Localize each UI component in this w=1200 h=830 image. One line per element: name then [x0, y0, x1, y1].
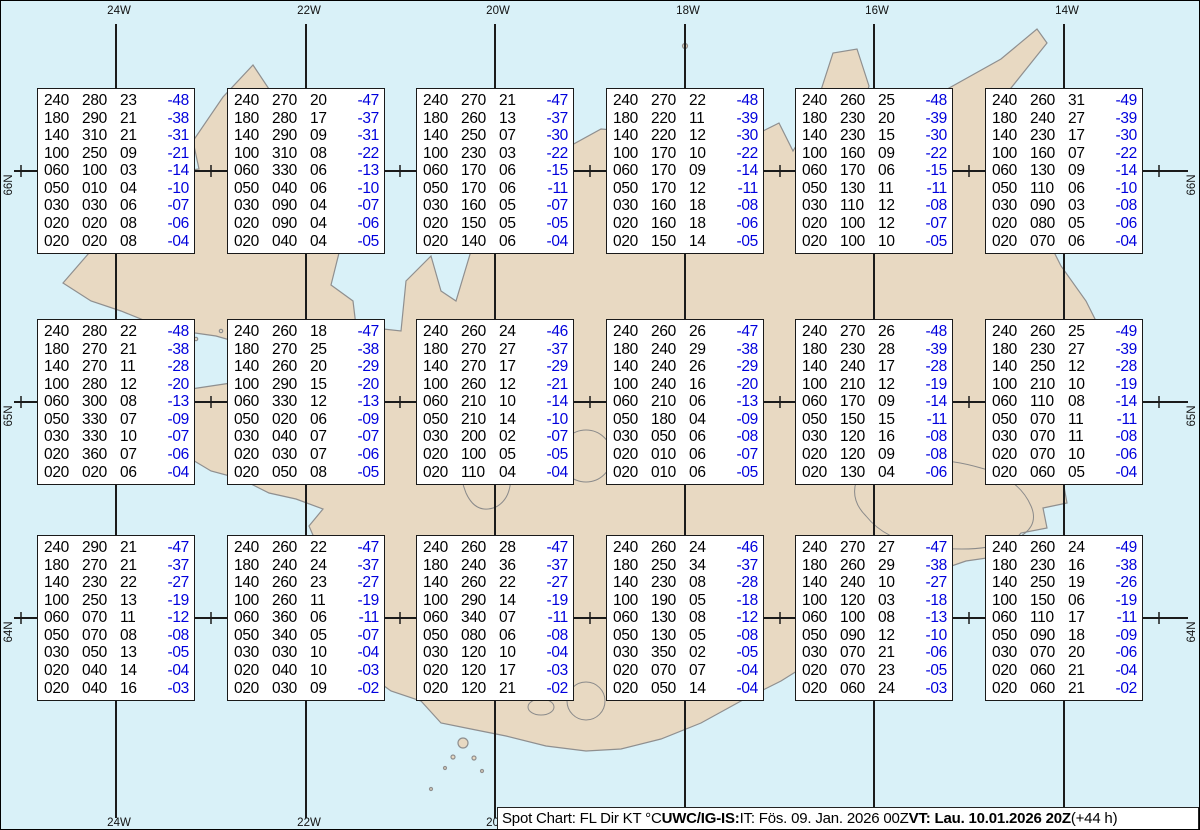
dir-value: 260 — [1030, 539, 1068, 556]
temp-value: -47 — [925, 539, 947, 556]
temp-value: -04 — [1115, 233, 1137, 250]
kt-value: 06 — [120, 197, 150, 214]
dir-value: 070 — [1030, 428, 1068, 445]
dir-value: 050 — [82, 644, 120, 661]
spot-row: 02012009-08 — [802, 446, 947, 463]
temp-value: -46 — [546, 323, 568, 340]
kt-value: 10 — [499, 393, 529, 410]
temp-value: -47 — [357, 92, 379, 109]
dir-value: 070 — [651, 662, 689, 679]
dir-value: 250 — [1030, 358, 1068, 375]
dir-value: 280 — [82, 323, 120, 340]
temp-value: -48 — [925, 323, 947, 340]
fl-value: 020 — [992, 464, 1030, 481]
fl-value: 060 — [802, 393, 840, 410]
temp-value: -27 — [167, 574, 189, 591]
parallel-label-left: 64N — [3, 621, 15, 642]
dir-value: 110 — [840, 197, 878, 214]
spot-row: 03007020-06 — [992, 644, 1137, 661]
kt-value: 14 — [499, 592, 529, 609]
spot-row: 06017006-15 — [802, 162, 947, 179]
spot-row: 03009003-08 — [992, 197, 1137, 214]
kt-value: 14 — [120, 662, 150, 679]
kt-value: 14 — [499, 411, 529, 428]
spot-row: 05011006-10 — [992, 180, 1137, 197]
fl-value: 100 — [802, 592, 840, 609]
temp-value: -11 — [548, 180, 568, 197]
footer-text: Spot Chart: FL Dir KT °C — [502, 810, 662, 827]
kt-value: 05 — [499, 197, 529, 214]
dir-value: 180 — [651, 411, 689, 428]
spot-row: 10025013-19 — [44, 592, 189, 609]
spot-row: 05004006-10 — [234, 180, 379, 197]
spot-row: 03012010-04 — [423, 644, 568, 661]
spot-row: 10029014-19 — [423, 592, 568, 609]
spot-row: 05017006-11 — [423, 180, 568, 197]
fl-value: 020 — [802, 446, 840, 463]
fl-value: 180 — [423, 110, 461, 127]
fl-value: 020 — [992, 446, 1030, 463]
temp-value: -07 — [546, 197, 568, 214]
spot-row: 10031008-22 — [234, 145, 379, 162]
dir-value: 050 — [651, 680, 689, 697]
fl-value: 180 — [802, 341, 840, 358]
spot-row: 14023017-30 — [992, 127, 1137, 144]
temp-value: -46 — [736, 539, 758, 556]
dir-value: 270 — [272, 92, 310, 109]
dir-value: 100 — [840, 609, 878, 626]
fl-value: 050 — [44, 180, 82, 197]
spot-row: 06010008-13 — [802, 609, 947, 626]
fl-value: 140 — [613, 127, 651, 144]
fl-value: 050 — [613, 627, 651, 644]
fl-value: 100 — [44, 145, 82, 162]
temp-value: -22 — [1115, 145, 1137, 162]
temp-value: -29 — [546, 358, 568, 375]
kt-value: 25 — [878, 92, 908, 109]
kt-value: 08 — [120, 393, 150, 410]
spot-row: 06017009-14 — [613, 162, 758, 179]
kt-value: 06 — [1068, 180, 1098, 197]
temp-value: -37 — [546, 557, 568, 574]
spot-row: 24026022-47 — [234, 539, 379, 556]
spot-row: 03007021-06 — [802, 644, 947, 661]
kt-value: 17 — [310, 110, 340, 127]
fl-value: 050 — [802, 627, 840, 644]
spot-row: 18026029-38 — [802, 557, 947, 574]
kt-value: 04 — [310, 197, 340, 214]
dir-value: 120 — [840, 428, 878, 445]
dir-value: 290 — [272, 127, 310, 144]
fl-value: 100 — [234, 145, 272, 162]
fl-value: 020 — [44, 446, 82, 463]
kt-value: 07 — [499, 127, 529, 144]
fl-value: 240 — [802, 539, 840, 556]
spot-data-box-64N16W: 24027027-4718026029-3814024010-271001200… — [795, 535, 953, 701]
dir-value: 010 — [82, 180, 120, 197]
spot-row: 18024036-37 — [423, 557, 568, 574]
spot-row: 05002006-09 — [234, 411, 379, 428]
kt-value: 06 — [689, 428, 719, 445]
fl-value: 020 — [613, 680, 651, 697]
kt-value: 06 — [1068, 592, 1098, 609]
dir-value: 190 — [651, 592, 689, 609]
temp-value: -05 — [925, 233, 947, 250]
kt-value: 25 — [310, 341, 340, 358]
kt-value: 07 — [310, 428, 340, 445]
temp-value: -19 — [1115, 592, 1137, 609]
temp-value: -14 — [1115, 162, 1137, 179]
dir-value: 120 — [461, 644, 499, 661]
kt-value: 04 — [499, 464, 529, 481]
dir-value: 070 — [1030, 411, 1068, 428]
dir-value: 130 — [651, 609, 689, 626]
fl-value: 020 — [423, 233, 461, 250]
kt-value: 23 — [878, 662, 908, 679]
dir-value: 010 — [651, 464, 689, 481]
kt-value: 10 — [1068, 446, 1098, 463]
spot-data-box-64N24W: 24029021-4718027021-3714023022-271002501… — [37, 535, 195, 701]
temp-value: -07 — [357, 197, 379, 214]
dir-value: 230 — [840, 127, 878, 144]
spot-row: 10019005-18 — [613, 592, 758, 609]
temp-value: -38 — [736, 341, 758, 358]
temp-value: -37 — [546, 341, 568, 358]
dir-value: 260 — [272, 574, 310, 591]
kt-value: 13 — [499, 110, 529, 127]
kt-value: 08 — [1068, 393, 1098, 410]
dir-value: 260 — [272, 592, 310, 609]
dir-value: 040 — [272, 428, 310, 445]
fl-value: 180 — [234, 110, 272, 127]
fl-value: 240 — [234, 92, 272, 109]
temp-value: -11 — [548, 609, 568, 626]
meridian-label-bottom: 22W — [297, 817, 321, 829]
dir-value: 150 — [461, 215, 499, 232]
dir-value: 110 — [1030, 609, 1068, 626]
temp-value: -05 — [546, 446, 568, 463]
spot-row: 03009004-07 — [234, 197, 379, 214]
kt-value: 04 — [689, 411, 719, 428]
spot-row: 02006021-02 — [992, 680, 1137, 697]
spot-row: 02007007-04 — [613, 662, 758, 679]
fl-value: 100 — [234, 376, 272, 393]
kt-value: 13 — [120, 592, 150, 609]
spot-row: 24028023-48 — [44, 92, 189, 109]
dir-value: 240 — [651, 358, 689, 375]
temp-value: -13 — [357, 393, 379, 410]
temp-value: -18 — [736, 592, 758, 609]
temp-value: -03 — [167, 680, 189, 697]
kt-value: 24 — [499, 323, 529, 340]
fl-value: 060 — [423, 393, 461, 410]
spot-data-box-66N18W: 24027022-4818022011-3914022012-301001701… — [606, 88, 764, 254]
dir-value: 050 — [272, 464, 310, 481]
dir-value: 240 — [461, 557, 499, 574]
fl-value: 240 — [613, 323, 651, 340]
meridian-label-top: 22W — [297, 5, 321, 17]
kt-value: 02 — [689, 644, 719, 661]
fl-value: 140 — [234, 574, 272, 591]
temp-value: -04 — [167, 233, 189, 250]
temp-value: -11 — [927, 411, 947, 428]
spot-row: 06011008-14 — [992, 393, 1137, 410]
dir-value: 090 — [1030, 197, 1068, 214]
fl-value: 100 — [613, 592, 651, 609]
fl-value: 180 — [992, 341, 1030, 358]
kt-value: 09 — [878, 145, 908, 162]
kt-value: 26 — [689, 358, 719, 375]
dir-value: 040 — [272, 180, 310, 197]
temp-value: -14 — [1115, 393, 1137, 410]
dir-value: 130 — [651, 627, 689, 644]
fl-value: 020 — [613, 464, 651, 481]
fl-value: 060 — [992, 609, 1030, 626]
spot-row: 03005013-05 — [44, 644, 189, 661]
fl-value: 050 — [423, 411, 461, 428]
fl-value: 100 — [992, 592, 1030, 609]
dir-value: 040 — [272, 233, 310, 250]
spot-row: 18028017-37 — [234, 110, 379, 127]
kt-value: 03 — [1068, 197, 1098, 214]
kt-value: 12 — [1068, 358, 1098, 375]
spot-row: 18023028-39 — [802, 341, 947, 358]
spot-row: 14022012-30 — [613, 127, 758, 144]
spot-row: 10015006-19 — [992, 592, 1137, 609]
kt-value: 12 — [499, 376, 529, 393]
kt-value: 12 — [120, 376, 150, 393]
kt-value: 06 — [499, 627, 529, 644]
dir-value: 170 — [461, 162, 499, 179]
temp-value: -05 — [736, 233, 758, 250]
fl-value: 030 — [802, 197, 840, 214]
dir-value: 330 — [82, 411, 120, 428]
fl-value: 050 — [44, 411, 82, 428]
temp-value: -05 — [167, 644, 189, 661]
spot-row: 02007006-04 — [992, 233, 1137, 250]
kt-value: 24 — [310, 557, 340, 574]
fl-value: 240 — [44, 92, 82, 109]
dir-value: 270 — [840, 539, 878, 556]
temp-value: -28 — [167, 358, 189, 375]
fl-value: 060 — [802, 609, 840, 626]
spot-row: 14024017-28 — [802, 358, 947, 375]
kt-value: 05 — [310, 627, 340, 644]
spot-row: 24027022-48 — [613, 92, 758, 109]
kt-value: 18 — [310, 323, 340, 340]
spot-row: 18029021-38 — [44, 110, 189, 127]
temp-value: -20 — [357, 376, 379, 393]
fl-value: 060 — [423, 609, 461, 626]
fl-value: 060 — [44, 162, 82, 179]
spot-row: 24029021-47 — [44, 539, 189, 556]
dir-value: 090 — [272, 197, 310, 214]
temp-value: -27 — [357, 574, 379, 591]
dir-value: 070 — [82, 627, 120, 644]
fl-value: 020 — [802, 680, 840, 697]
kt-value: 31 — [1068, 92, 1098, 109]
dir-value: 240 — [272, 557, 310, 574]
fl-value: 050 — [613, 411, 651, 428]
temp-value: -30 — [925, 127, 947, 144]
temp-value: -09 — [1115, 627, 1137, 644]
fl-value: 140 — [423, 127, 461, 144]
parallel-label-left: 65N — [3, 405, 15, 426]
fl-value: 020 — [992, 680, 1030, 697]
temp-value: -47 — [357, 323, 379, 340]
fl-value: 140 — [613, 358, 651, 375]
dir-value: 360 — [272, 609, 310, 626]
dir-value: 280 — [272, 110, 310, 127]
fl-value: 030 — [44, 197, 82, 214]
temp-value: -39 — [925, 341, 947, 358]
kt-value: 23 — [120, 92, 150, 109]
dir-value: 270 — [651, 92, 689, 109]
spot-row: 05009012-10 — [802, 627, 947, 644]
kt-value: 12 — [878, 215, 908, 232]
fl-value: 180 — [234, 341, 272, 358]
kt-value: 27 — [1068, 341, 1098, 358]
spot-row: 14026022-27 — [423, 574, 568, 591]
temp-value: -07 — [357, 428, 379, 445]
temp-value: -19 — [167, 592, 189, 609]
dir-value: 260 — [461, 323, 499, 340]
fl-value: 140 — [44, 127, 82, 144]
dir-value: 350 — [651, 644, 689, 661]
kt-value: 28 — [499, 539, 529, 556]
dir-value: 170 — [651, 145, 689, 162]
temp-value: -15 — [925, 162, 947, 179]
temp-value: -04 — [1115, 662, 1137, 679]
dir-value: 210 — [840, 376, 878, 393]
fl-value: 060 — [613, 393, 651, 410]
spot-row: 14023015-30 — [802, 127, 947, 144]
kt-value: 17 — [1068, 609, 1098, 626]
kt-value: 21 — [499, 680, 529, 697]
spot-row: 10016009-22 — [802, 145, 947, 162]
fl-value: 060 — [802, 162, 840, 179]
dir-value: 120 — [840, 592, 878, 609]
kt-value: 06 — [878, 162, 908, 179]
fl-value: 020 — [613, 446, 651, 463]
dir-value: 270 — [82, 341, 120, 358]
temp-value: -14 — [546, 393, 568, 410]
fl-value: 030 — [423, 644, 461, 661]
spot-row: 18024024-37 — [234, 557, 379, 574]
fl-value: 020 — [802, 215, 840, 232]
fl-value: 030 — [613, 428, 651, 445]
kt-value: 18 — [689, 215, 719, 232]
fl-value: 020 — [44, 680, 82, 697]
dir-value: 160 — [461, 197, 499, 214]
temp-value: -11 — [927, 180, 947, 197]
spot-row: 02006005-04 — [992, 464, 1137, 481]
spot-row: 18024027-39 — [992, 110, 1137, 127]
spot-row: 24026025-49 — [992, 323, 1137, 340]
kt-value: 05 — [689, 627, 719, 644]
spot-row: 05009018-09 — [992, 627, 1137, 644]
dir-value: 020 — [82, 464, 120, 481]
kt-value: 16 — [120, 680, 150, 697]
dir-value: 240 — [840, 574, 878, 591]
dir-value: 130 — [1030, 162, 1068, 179]
dir-value: 260 — [461, 574, 499, 591]
spot-row: 24026024-46 — [423, 323, 568, 340]
temp-value: -47 — [546, 92, 568, 109]
dir-value: 110 — [1030, 393, 1068, 410]
dir-value: 080 — [1030, 215, 1068, 232]
kt-value: 17 — [499, 358, 529, 375]
kt-value: 21 — [120, 341, 150, 358]
kt-value: 15 — [878, 411, 908, 428]
fl-value: 140 — [44, 358, 82, 375]
spot-row: 02002008-06 — [44, 215, 189, 232]
temp-value: -13 — [357, 162, 379, 179]
spot-row: 06017006-15 — [423, 162, 568, 179]
dir-value: 330 — [82, 428, 120, 445]
fl-value: 060 — [423, 162, 461, 179]
dir-value: 170 — [840, 393, 878, 410]
spot-row: 10026012-21 — [423, 376, 568, 393]
temp-value: -37 — [546, 110, 568, 127]
spot-row: 02012017-03 — [423, 662, 568, 679]
kt-value: 07 — [499, 609, 529, 626]
spot-data-box-64N20W: 24026028-4718024036-3714026022-271002901… — [416, 535, 574, 701]
spot-row: 24026026-47 — [613, 323, 758, 340]
dir-value: 100 — [82, 162, 120, 179]
spot-row: 06011017-11 — [992, 609, 1137, 626]
spot-data-box-64N18W: 24026024-4618025034-3714023008-281001900… — [606, 535, 764, 701]
fl-value: 140 — [234, 127, 272, 144]
kt-value: 27 — [1068, 110, 1098, 127]
temp-value: -31 — [167, 127, 189, 144]
kt-value: 06 — [499, 233, 529, 250]
kt-value: 09 — [1068, 162, 1098, 179]
spot-row: 05007011-11 — [992, 411, 1137, 428]
fl-value: 050 — [423, 180, 461, 197]
temp-value: -21 — [546, 376, 568, 393]
kt-value: 06 — [310, 180, 340, 197]
fl-value: 020 — [992, 215, 1030, 232]
dir-value: 260 — [840, 557, 878, 574]
kt-value: 15 — [310, 376, 340, 393]
temp-value: -09 — [357, 411, 379, 428]
temp-value: -37 — [167, 557, 189, 574]
kt-value: 21 — [1068, 680, 1098, 697]
fl-value: 240 — [423, 92, 461, 109]
temp-value: -13 — [167, 393, 189, 410]
temp-value: -14 — [736, 162, 758, 179]
kt-value: 18 — [689, 197, 719, 214]
spot-row: 02013004-06 — [802, 464, 947, 481]
meridian-label-top: 24W — [107, 5, 131, 17]
kt-value: 05 — [1068, 215, 1098, 232]
spot-row: 14024026-29 — [613, 358, 758, 375]
spot-row: 24026025-48 — [802, 92, 947, 109]
spot-row: 10021012-19 — [802, 376, 947, 393]
spot-row: 24027027-47 — [802, 539, 947, 556]
fl-value: 020 — [234, 464, 272, 481]
spot-data-box-65N22W: 24026018-4718027025-3814026020-291002901… — [227, 319, 385, 485]
temp-value: -22 — [736, 145, 758, 162]
dir-value: 170 — [651, 162, 689, 179]
temp-value: -04 — [736, 662, 758, 679]
fl-value: 180 — [613, 110, 651, 127]
temp-value: -11 — [1117, 411, 1137, 428]
dir-value: 240 — [840, 358, 878, 375]
fl-value: 050 — [992, 180, 1030, 197]
fl-value: 060 — [613, 609, 651, 626]
